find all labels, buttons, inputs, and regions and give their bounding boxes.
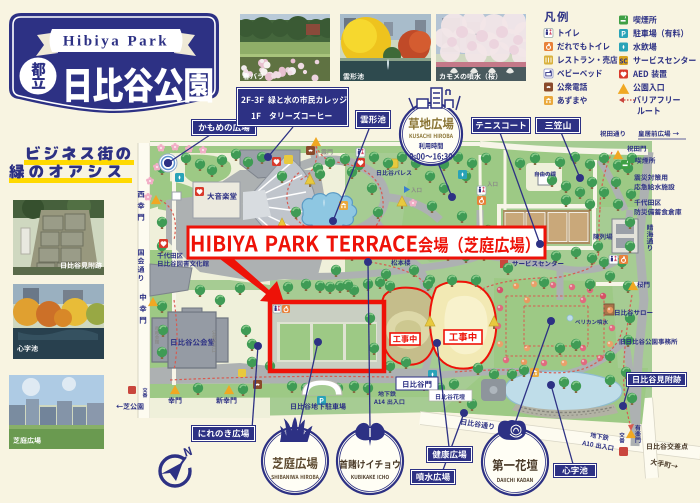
svg-text:Hibiya Park: Hibiya Park [63,34,169,50]
